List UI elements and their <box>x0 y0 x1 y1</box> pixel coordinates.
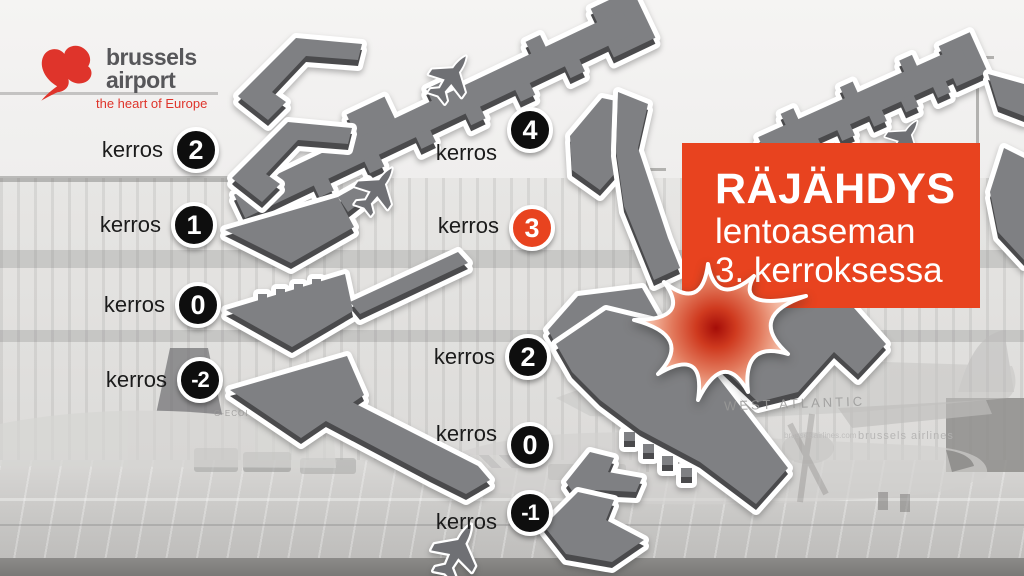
floor3-branch-shape <box>616 92 680 286</box>
floor-label: kerros <box>85 292 165 318</box>
floor-row-left-minus2: kerros -2 <box>87 357 223 403</box>
infographic-canvas: WEST ATLANTIC brussels airlines brussels… <box>0 0 1024 576</box>
floor-row-left-1: kerros 1 <box>81 202 217 248</box>
floor-row-left-0: kerros 0 <box>85 282 221 328</box>
floor-label: kerros <box>419 213 499 239</box>
floor-number-badge-highlighted: 3 <box>509 205 555 251</box>
floor-number-badge: 2 <box>173 127 219 173</box>
floor-row-right-minus1: kerros -1 <box>417 490 553 536</box>
floor-number-badge: 0 <box>175 282 221 328</box>
floor-label: kerros <box>83 137 163 163</box>
floor-number-badge: -2 <box>177 357 223 403</box>
floor-number-badge: -1 <box>507 490 553 536</box>
floor-number-badge: 0 <box>507 422 553 468</box>
photo-text-brussels-airlines: brussels airlines <box>858 430 954 442</box>
floor-number-badge: 1 <box>171 202 217 248</box>
floor-label: kerros <box>417 509 497 535</box>
floor-label: kerros <box>417 140 497 166</box>
floor-minus1-shape <box>544 492 644 568</box>
logo-word-brussels: brussels <box>106 46 197 69</box>
explosion-callout: RÄJÄHDYS lentoaseman 3. kerroksessa <box>682 143 980 308</box>
logo-word-airport: airport <box>106 69 197 92</box>
floor-number-badge: 2 <box>505 334 551 380</box>
floor-number-badge: 4 <box>507 107 553 153</box>
floor-row-right-0: kerros 0 <box>417 422 553 468</box>
photo-text-registration: G-ECOI <box>214 409 248 418</box>
brussels-airport-logo: brussels airport the heart of Europe <box>36 40 256 120</box>
floor-label: kerros <box>87 367 167 393</box>
floor-row-right-3: kerros 3 <box>419 205 555 251</box>
floor-label: kerros <box>81 212 161 238</box>
logo-tagline: the heart of Europe <box>96 96 207 111</box>
floor-row-right-2: kerros 2 <box>415 334 551 380</box>
photo-text-airline-url: brusselsairlines.com <box>784 431 856 440</box>
callout-line: 3. kerroksessa <box>715 251 980 290</box>
callout-title: RÄJÄHDYS <box>715 167 980 212</box>
floor-row-left-2: kerros 2 <box>83 127 219 173</box>
floor-label: kerros <box>415 344 495 370</box>
floor-label: kerros <box>417 421 497 447</box>
callout-line: lentoaseman <box>715 212 980 251</box>
floor-row-right-4: kerros 4 <box>417 107 553 153</box>
heart-logo-icon <box>36 42 102 104</box>
floor4-edge-shape <box>988 74 1024 266</box>
